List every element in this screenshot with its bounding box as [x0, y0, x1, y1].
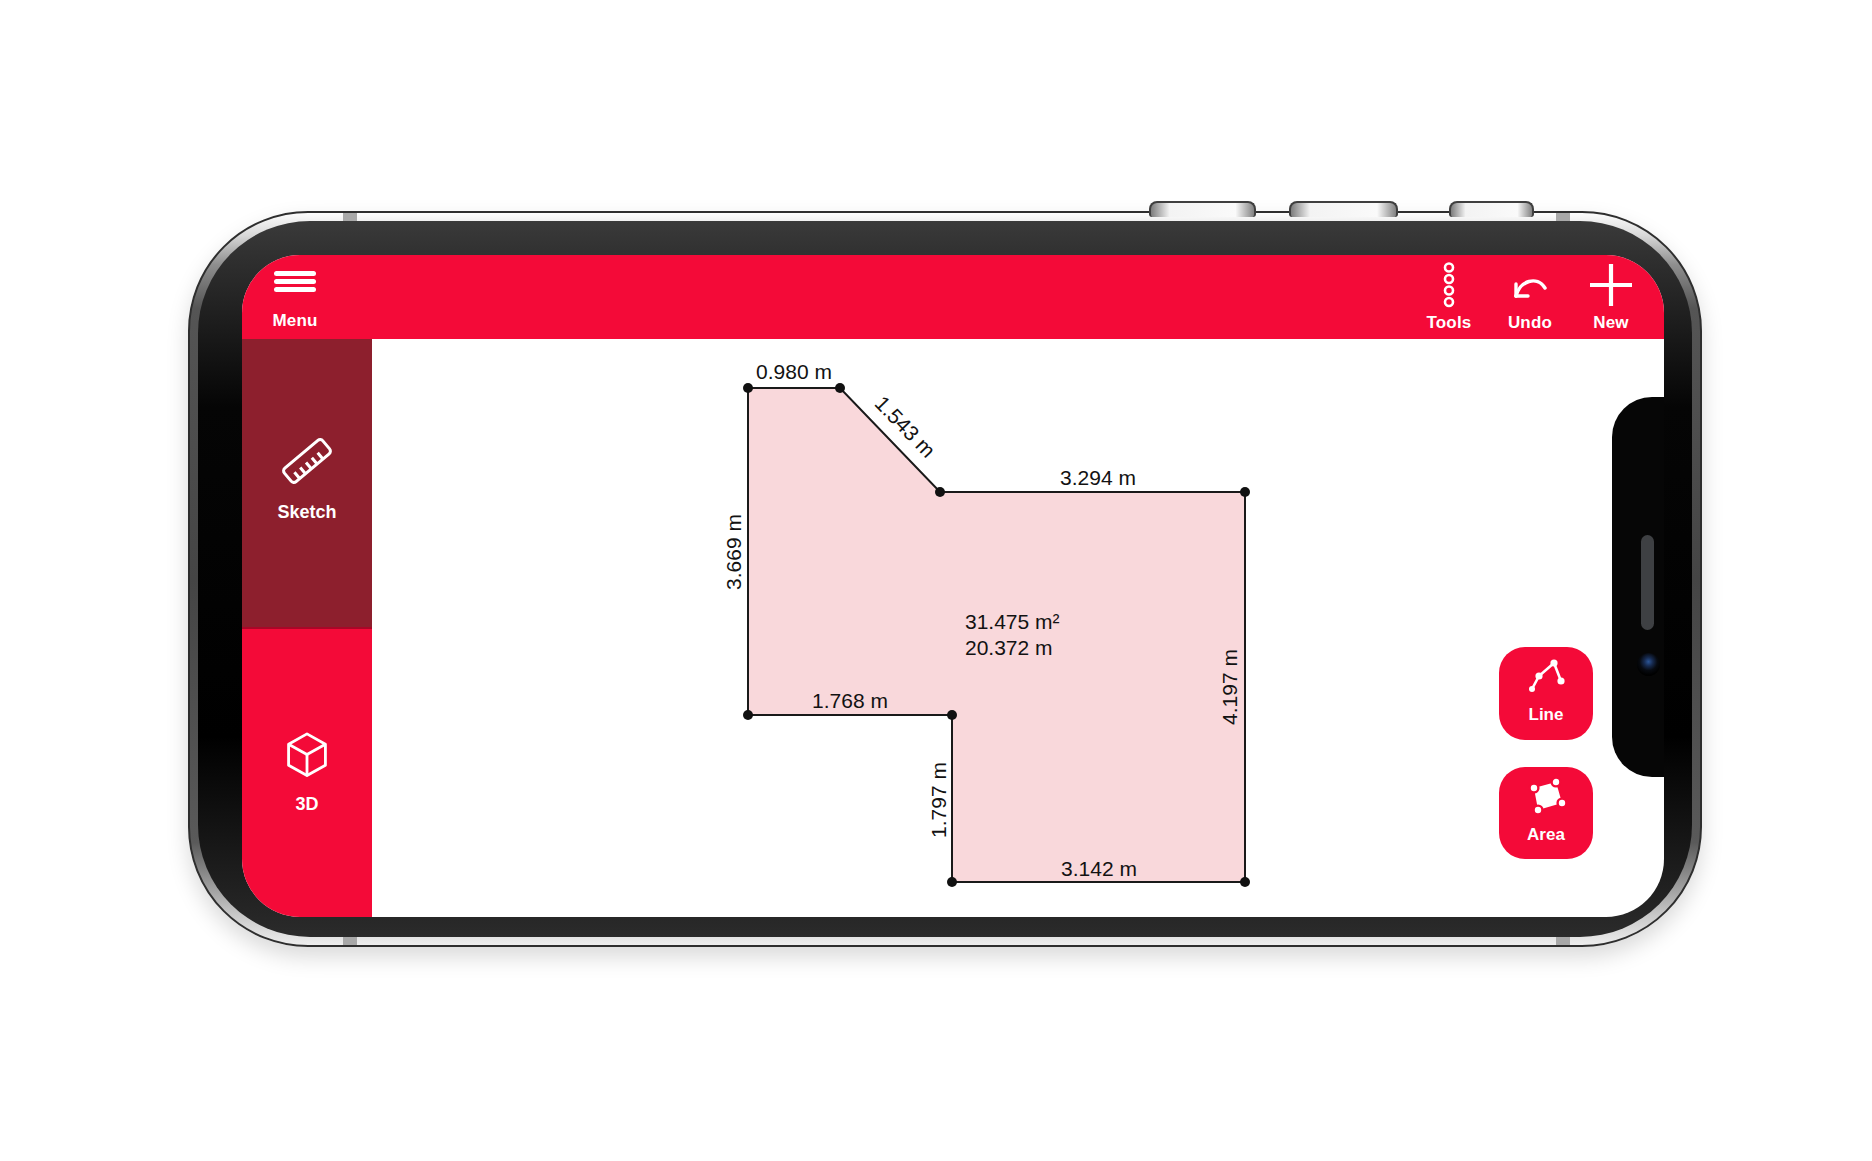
sketch-vertex[interactable] [1240, 877, 1250, 887]
volume-down-button [1289, 201, 1398, 217]
sketch-vertex[interactable] [835, 383, 845, 393]
sketch-vertex[interactable] [935, 487, 945, 497]
sketch-vertex[interactable] [947, 710, 957, 720]
kebab-dots-icon [1442, 261, 1456, 309]
undo-label: Undo [1508, 313, 1552, 333]
area-tool-label: Area [1527, 825, 1565, 845]
new-button[interactable]: New [1569, 261, 1653, 333]
ruler-icon [279, 433, 335, 493]
edge-measurement-label: 4.197 m [1218, 649, 1242, 725]
new-label: New [1593, 313, 1629, 333]
edge-measurement-label: 1.768 m [812, 689, 888, 713]
sketch-vertex[interactable] [947, 877, 957, 887]
undo-arrow-icon [1507, 261, 1553, 309]
tools-label: Tools [1426, 313, 1471, 333]
polygon-icon [1525, 777, 1567, 818]
power-button [1449, 201, 1534, 217]
sidebar-item-3d[interactable]: 3D [242, 627, 372, 917]
app-header: Menu Tools [242, 255, 1664, 339]
edge-measurement-label: 1.797 m [927, 762, 951, 838]
sketch-vertex[interactable] [743, 383, 753, 393]
area-tool-button[interactable]: Area [1499, 767, 1593, 859]
edge-measurement-label: 3.669 m [722, 514, 746, 590]
tools-button[interactable]: Tools [1407, 261, 1491, 333]
phone-mockup: Menu Tools [188, 211, 1702, 947]
antenna-line [343, 937, 357, 945]
page-background: Menu Tools [0, 0, 1872, 1161]
sketch-summary: 31.475 m² 20.372 m [965, 609, 1060, 661]
line-tool-button[interactable]: Line [1499, 647, 1593, 740]
antenna-line [343, 213, 357, 221]
sketch-vertex[interactable] [743, 710, 753, 720]
sidebar-sketch-label: Sketch [277, 502, 336, 523]
speaker-icon [1641, 535, 1654, 630]
floorplan-drawing [242, 255, 1664, 917]
area-value: 31.475 m² [965, 609, 1060, 635]
perimeter-value: 20.372 m [965, 635, 1060, 661]
volume-up-button [1149, 201, 1256, 217]
undo-button[interactable]: Undo [1488, 261, 1572, 333]
phone-notch [1612, 397, 1664, 777]
sidebar-3d-label: 3D [295, 794, 318, 815]
edge-measurement-label: 3.294 m [1060, 466, 1136, 490]
antenna-line [1556, 937, 1570, 945]
antenna-line [1556, 213, 1570, 221]
camera-icon [1637, 653, 1660, 676]
sketch-vertex[interactable] [1240, 487, 1250, 497]
line-tool-label: Line [1529, 705, 1564, 725]
app-screen: Menu Tools [242, 255, 1664, 917]
cube-icon [281, 729, 333, 785]
edge-measurement-label: 0.980 m [756, 360, 832, 384]
menu-button[interactable]: Menu [272, 271, 318, 331]
menu-label: Menu [272, 311, 317, 331]
edge-measurement-label: 3.142 m [1061, 857, 1137, 881]
polyline-icon [1525, 657, 1567, 698]
sidebar-item-sketch[interactable]: Sketch [242, 339, 372, 627]
hamburger-icon [274, 271, 316, 292]
sketch-canvas[interactable]: 0.980 m 1.543 m 3.294 m 3.669 m 4.197 m … [242, 255, 1664, 917]
plus-icon [1588, 261, 1634, 309]
